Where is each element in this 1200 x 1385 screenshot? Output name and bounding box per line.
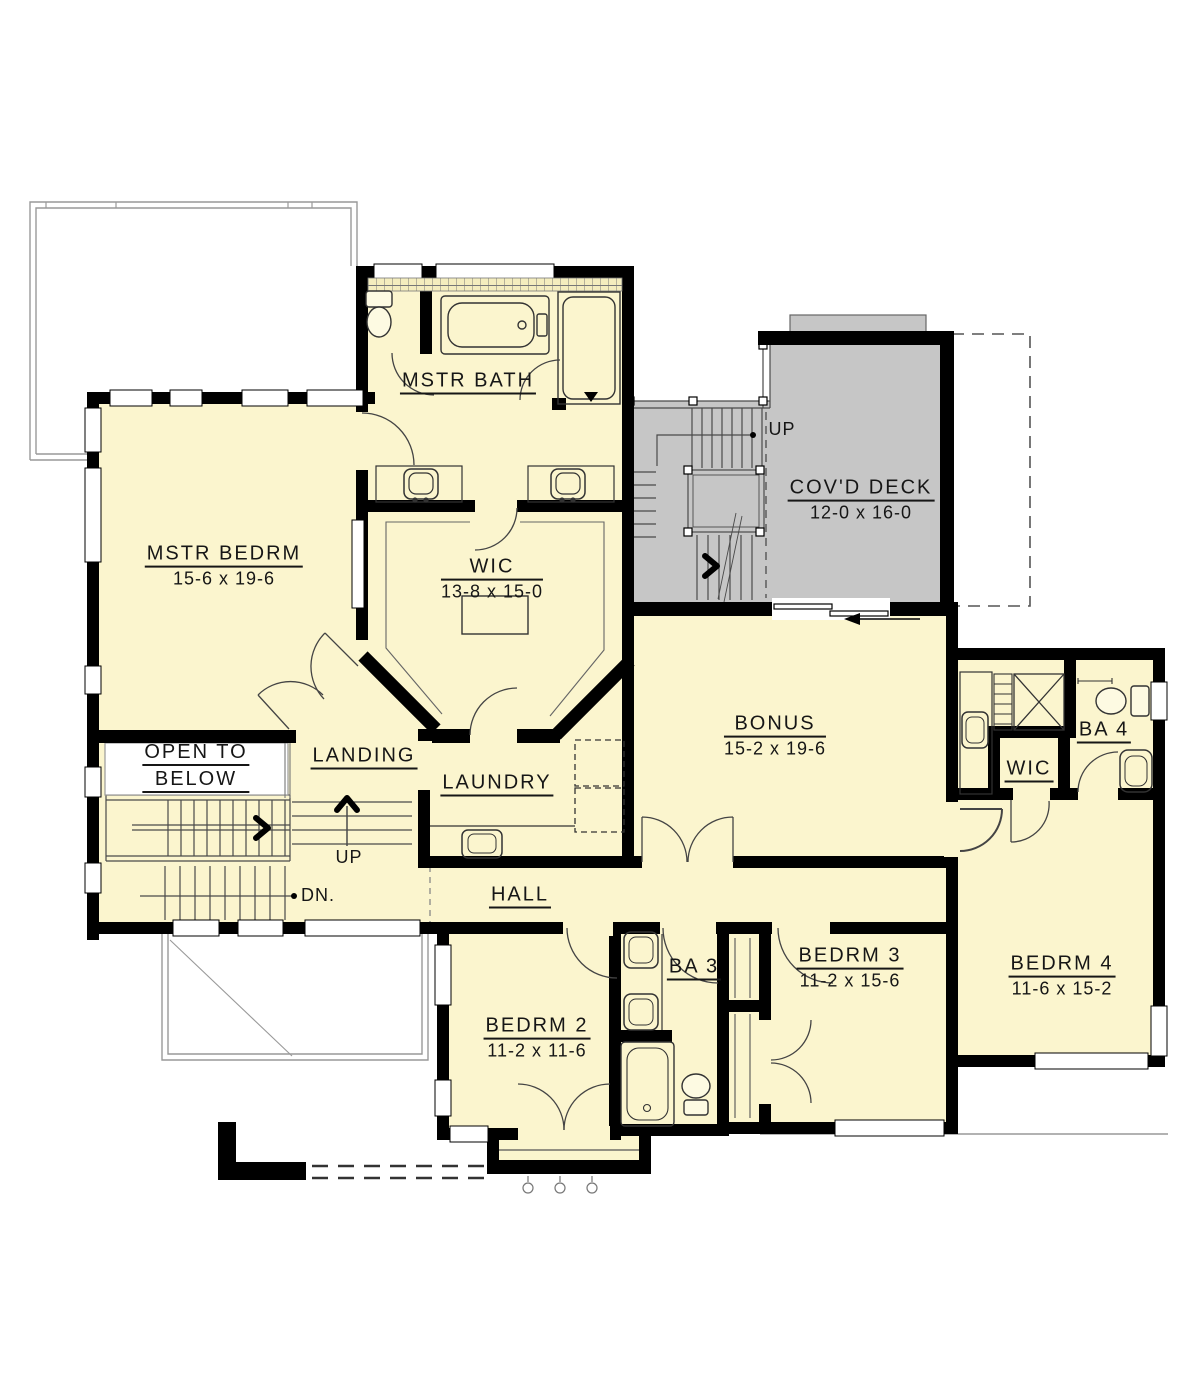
toilet-master	[366, 291, 392, 337]
room-label-mstr-bath: MSTR BATH	[400, 370, 536, 395]
room-dims: 11-2 x 11-6	[484, 1042, 591, 1062]
room-dims: 13-8 x 15-0	[441, 583, 543, 603]
room-name: COV'D DECK	[788, 477, 935, 502]
annotation-up-landing: UP	[335, 848, 362, 866]
room-dims: 15-2 x 19-6	[724, 740, 826, 760]
room-name: BA 4	[1077, 719, 1131, 744]
room-label-mstr-bedrm: MSTR BEDRM 15-6 x 19-6	[145, 543, 303, 590]
room-label-bedrm4: BEDRM 4 11-6 x 15-2	[1009, 953, 1116, 1000]
roof-outline-bottom-left	[162, 934, 428, 1060]
dn-text: DN.	[301, 886, 335, 904]
room-label-ba3: BA 3	[667, 956, 721, 981]
room-name: MSTR BATH	[400, 370, 536, 395]
floor-plan-drawing	[0, 0, 1200, 1385]
room-name-line2: BELOW	[142, 768, 249, 793]
room-name-line1: OPEN TO	[142, 741, 249, 766]
room-name: LAUNDRY	[440, 772, 553, 797]
room-label-covd-deck: COV'D DECK 12-0 x 16-0	[788, 477, 935, 524]
room-label-bedrm3: BEDRM 3 11-2 x 15-6	[797, 945, 904, 992]
room-label-laundry: LAUNDRY	[440, 772, 553, 797]
room-label-open-to-below: OPEN TO BELOW	[142, 741, 249, 793]
room-label-ba4: BA 4	[1077, 719, 1131, 744]
room-label-bedrm2: BEDRM 2 11-2 x 11-6	[484, 1015, 591, 1062]
room-dims: 15-6 x 19-6	[145, 570, 303, 590]
annotation-up-deck: UP	[768, 420, 795, 438]
room-name: BEDRM 4	[1009, 953, 1116, 978]
room-name: BA 3	[667, 956, 721, 981]
room-name: LANDING	[311, 745, 418, 770]
up-text: UP	[768, 420, 795, 438]
room-name: WIC	[441, 556, 543, 581]
room-label-hall: HALL	[489, 884, 551, 909]
room-dims: 11-6 x 15-2	[1009, 980, 1116, 1000]
room-name: WIC	[1005, 758, 1054, 783]
room-label-landing: LANDING	[311, 745, 418, 770]
bath-tile-band	[368, 278, 622, 291]
room-dims: 12-0 x 16-0	[788, 504, 935, 524]
room-name: BONUS	[724, 713, 826, 738]
room-name: MSTR BEDRM	[145, 543, 303, 568]
room-name: BEDRM 3	[797, 945, 904, 970]
room-label-bonus: BONUS 15-2 x 19-6	[724, 713, 826, 760]
room-label-wic-master: WIC 13-8 x 15-0	[441, 556, 543, 603]
deck-area	[630, 315, 952, 602]
room-name: BEDRM 2	[484, 1015, 591, 1040]
room-dims: 11-2 x 15-6	[797, 972, 904, 992]
up-text: UP	[335, 848, 362, 866]
room-name: HALL	[489, 884, 551, 909]
floor-plan: MSTR BATH MSTR BEDRM 15-6 x 19-6 WIC 13-…	[0, 0, 1200, 1385]
annotation-down: DN.	[301, 886, 335, 904]
room-label-wic-bedrm4: WIC	[1005, 758, 1054, 783]
